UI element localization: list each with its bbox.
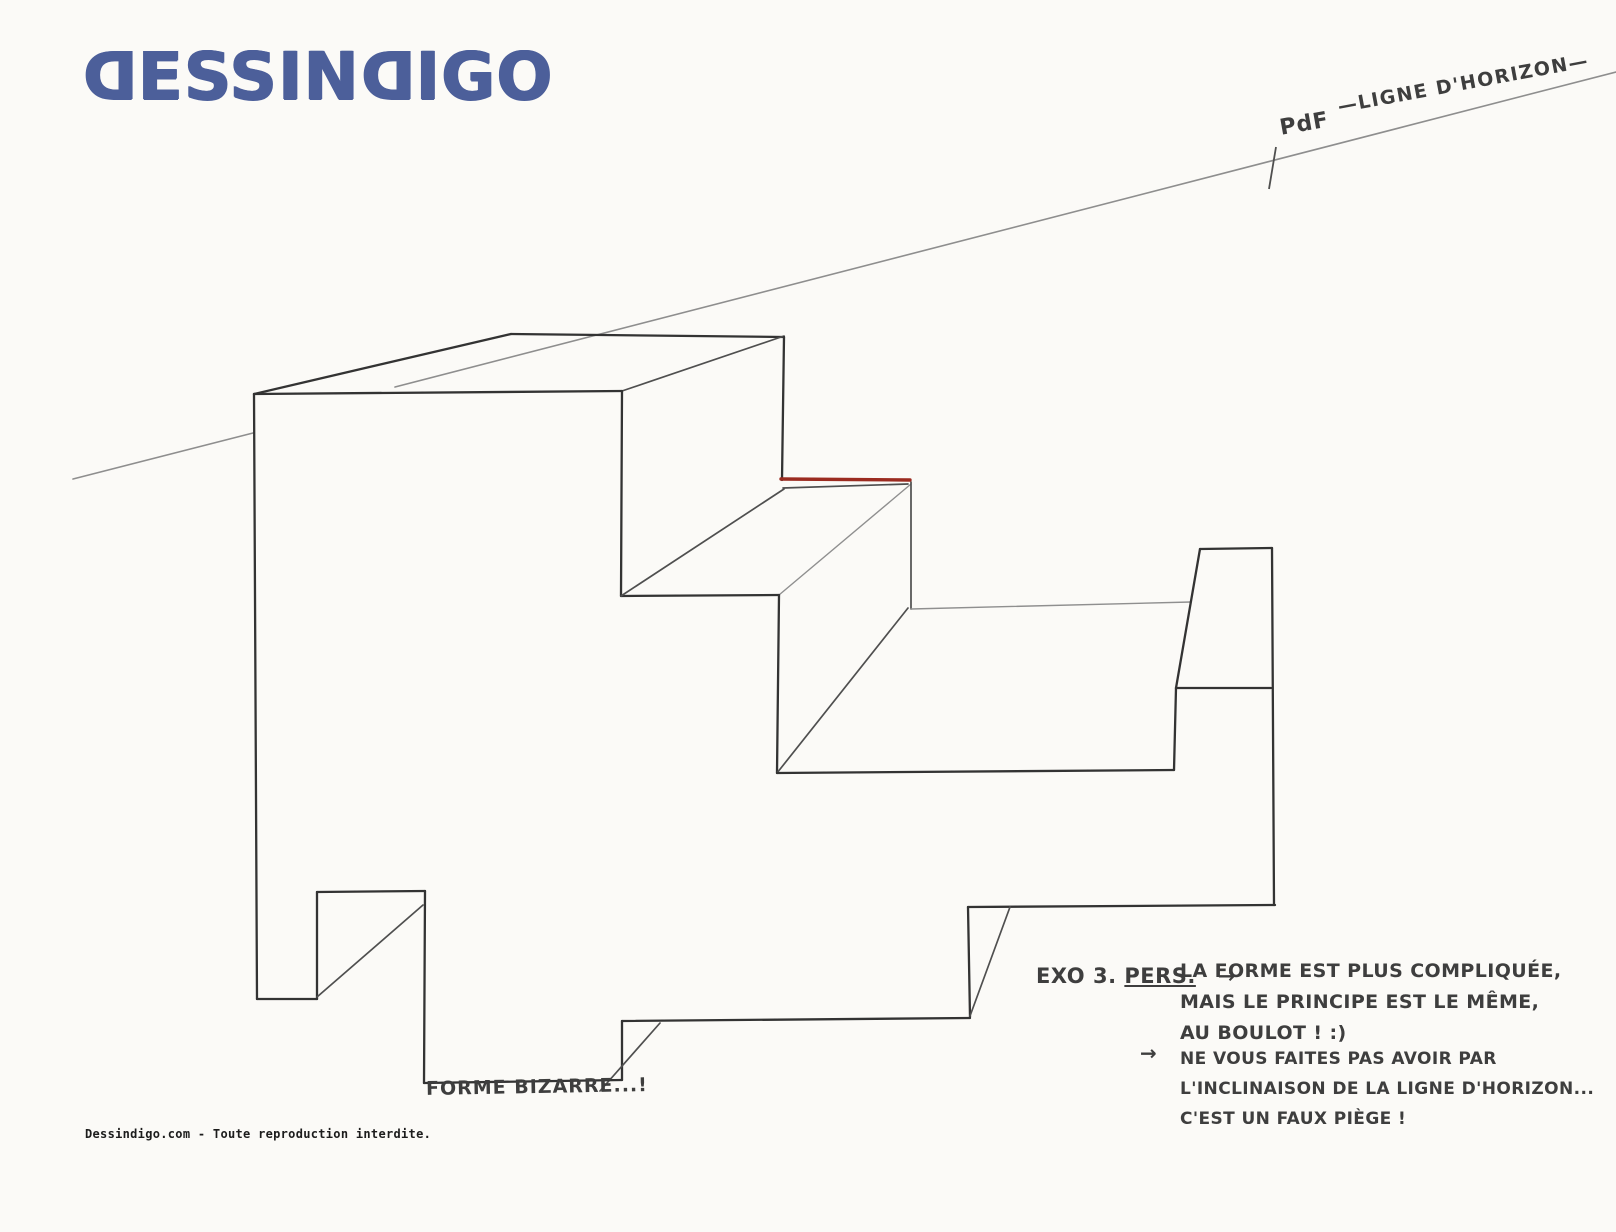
red-highlight-edge — [781, 479, 910, 480]
sketch-line — [424, 891, 425, 1083]
logo-letter: D — [360, 38, 416, 115]
logo-letter: G — [441, 38, 496, 115]
logo-letter: D — [82, 38, 138, 115]
notes-block-2: NE VOUS FAITES PAS AVOIR PAR L'INCLINAIS… — [1180, 1044, 1594, 1134]
sketch-line — [621, 391, 622, 596]
logo-letter: S — [184, 38, 230, 115]
logo-letter: S — [229, 38, 278, 115]
note-line: MAIS LE PRINCIPE EST LE MÊME, — [1180, 987, 1561, 1018]
sketch-line — [317, 905, 423, 997]
exercise-label: EXO 3. — [1036, 964, 1117, 988]
note-line: L'INCLINAISON DE LA LIGNE D'HORIZON... — [1180, 1074, 1594, 1104]
note-line: C'EST UN FAUX PIÈGE ! — [1180, 1104, 1594, 1134]
scanned-sheet: DESSINDIGO PdF —LIGNE D'HORIZON— FORME B… — [0, 0, 1616, 1232]
arrow-icon: → — [1140, 1041, 1158, 1065]
sketch-line — [395, 72, 1616, 387]
logo-letter: I — [416, 38, 442, 115]
shape-caption: FORME BIZARRE...! — [426, 1074, 648, 1100]
sketch-line — [621, 595, 779, 596]
dessindigo-logo: DESSINDIGO — [82, 38, 553, 115]
logo-letter: I — [278, 38, 304, 115]
logo-letter: E — [138, 38, 184, 115]
logo-letter: N — [304, 38, 360, 115]
sketch-line — [1200, 548, 1272, 549]
copyright-footer: Dessindigo.com - Toute reproduction inte… — [85, 1127, 431, 1141]
sketch-line — [511, 334, 784, 337]
sketch-line — [970, 907, 1010, 1016]
sketch-line — [317, 891, 425, 892]
note-line: NE VOUS FAITES PAS AVOIR PAR — [1180, 1044, 1594, 1074]
sketch-line — [254, 334, 511, 394]
logo-letter: O — [496, 38, 553, 115]
vanishing-point-tick — [1269, 147, 1276, 189]
notes-block-1: LA FORME EST PLUS COMPLIQUÉE, MAIS LE PR… — [1180, 956, 1561, 1049]
sketch-line — [73, 433, 253, 479]
note-line: LA FORME EST PLUS COMPLIQUÉE, — [1180, 956, 1561, 987]
